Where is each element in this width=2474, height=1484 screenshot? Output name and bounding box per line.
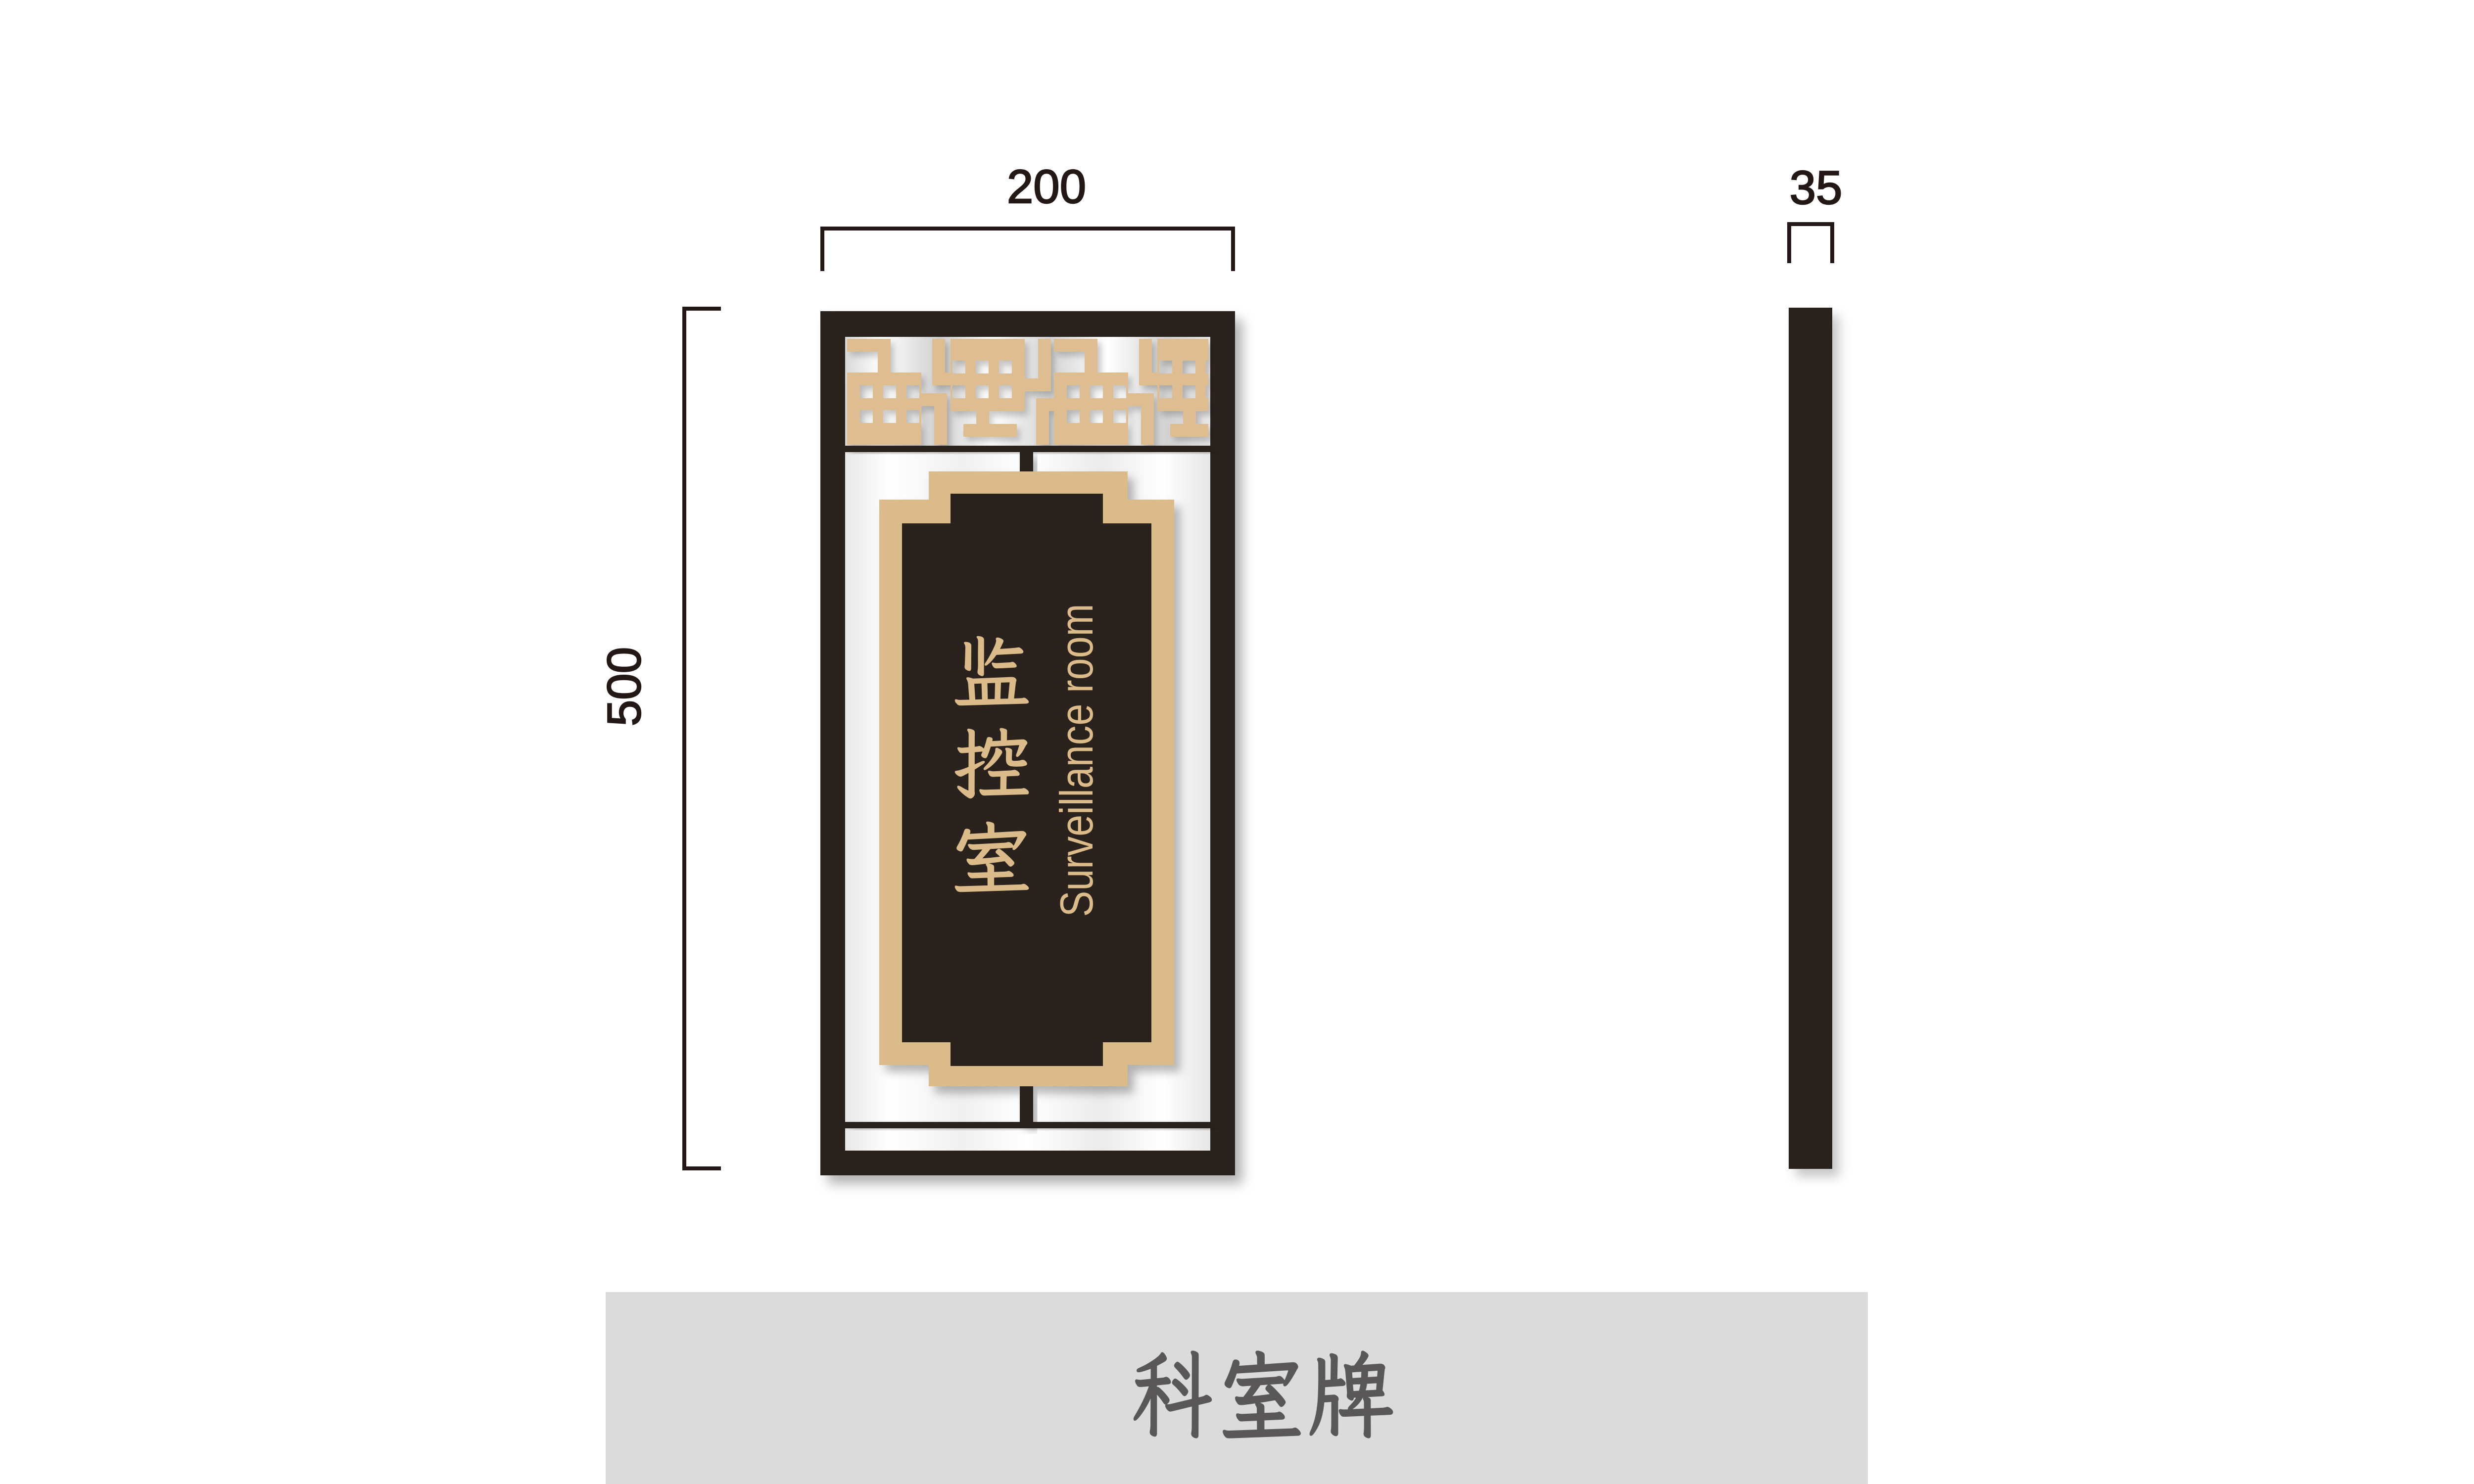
svg-text:500: 500 <box>598 647 651 726</box>
svg-text:Surveillance room: Surveillance room <box>1050 604 1102 917</box>
svg-text:200: 200 <box>1007 160 1086 213</box>
svg-text:35: 35 <box>1790 161 1843 214</box>
